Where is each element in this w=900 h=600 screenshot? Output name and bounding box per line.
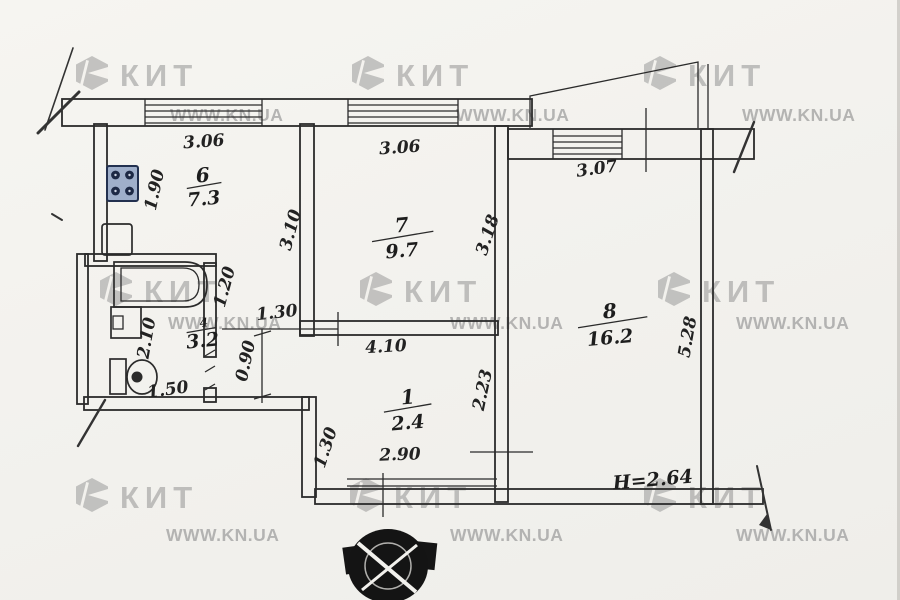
- room-label-room7: 7 9.7: [370, 210, 436, 264]
- room-label-room8: 8 16.2: [576, 296, 650, 352]
- wall-bathroom-left: [77, 254, 88, 404]
- kit-logo-icon: [352, 56, 384, 90]
- wall-bottom-left: [84, 397, 309, 410]
- dim-kitchen-window: 3.06: [183, 131, 226, 154]
- watermark-site: WWW.KN.UA: [736, 525, 849, 545]
- watermark-site: WWW.KN.UA: [170, 105, 283, 125]
- watermark-site: WWW.KN.UA: [742, 105, 855, 125]
- room-area: 16.2: [586, 325, 634, 351]
- wall-top-right: [508, 129, 754, 159]
- room-number: 4: [199, 315, 209, 330]
- room-number: 7: [394, 212, 410, 237]
- watermark-site: WWW.KN.UA: [450, 313, 563, 333]
- watermark-brand: КИТ: [404, 274, 482, 309]
- kit-logo-icon: [658, 272, 690, 306]
- watermark-site: WWW.KN.UA: [736, 313, 849, 333]
- wall-break-mark: [78, 400, 105, 446]
- room-label-kitchen: 6 7.3: [184, 162, 223, 212]
- watermark-site: WWW.KN.UA: [456, 105, 569, 125]
- room-number: 1: [400, 384, 416, 409]
- wall-break-mark: [45, 48, 73, 130]
- dim-kitchen-depth: 3.10: [276, 207, 306, 252]
- dim-hall-bottom-width: 2.90: [378, 444, 421, 465]
- bathroom-door-hatch: [205, 350, 215, 390]
- floor-plan-drawing: КИТ КИТ КИТ КИТ КИТ КИТ КИТ КИТ КИТ WWW.…: [0, 0, 900, 600]
- wall-kitchen-left: [94, 124, 107, 261]
- scan-speck: [52, 214, 62, 220]
- watermark-brand: КИТ: [120, 480, 198, 515]
- kit-logo-icon: [360, 272, 392, 306]
- watermark-brand: КИТ: [396, 58, 474, 93]
- watermark-brand: КИТ: [120, 58, 198, 93]
- dim-room8-depth: 5.28: [675, 315, 702, 359]
- dim-room8-window: 3.07: [575, 156, 619, 182]
- room-number: 8: [601, 298, 618, 323]
- dim-hall-top-width: 4.10: [365, 336, 408, 358]
- wall-kitchen-room7: [300, 124, 314, 336]
- dim-bathroom-top-width: 1.20: [210, 264, 240, 309]
- watermark-site: WWW.KN.UA: [166, 525, 279, 545]
- dim-corridor-depth: 0.90: [232, 339, 260, 384]
- room-number: 6: [195, 162, 211, 187]
- kit-logo-icon: [76, 478, 108, 512]
- washbasin-icon: [111, 307, 141, 338]
- dim-bathroom-width: 1.50: [146, 377, 190, 403]
- wall-entry-step: [302, 397, 316, 497]
- dim-room7-window: 3.06: [379, 137, 422, 160]
- room-area: 2.4: [390, 411, 426, 436]
- dim-bathroom-depth: 2.10: [133, 316, 160, 361]
- watermark-brand: КИТ: [688, 58, 766, 93]
- room-area: 7.3: [186, 187, 221, 212]
- window-room7: [348, 99, 458, 126]
- watermark-brand: КИТ: [394, 480, 472, 515]
- stamp-mark: [342, 529, 437, 600]
- kit-logo-icon: [76, 56, 108, 90]
- room-area: 9.7: [385, 239, 420, 264]
- dim-kitchen-width: 1.90: [141, 168, 169, 213]
- watermark-brand: КИТ: [688, 480, 766, 515]
- scanned-floor-plan: КИТ КИТ КИТ КИТ КИТ КИТ КИТ КИТ КИТ WWW.…: [0, 0, 900, 600]
- stove-icon: [107, 166, 138, 201]
- room-area: 3.2: [185, 328, 220, 353]
- kit-logo-icon: [644, 56, 676, 90]
- wall-right: [701, 129, 713, 504]
- dim-entry-step: 1.30: [310, 425, 342, 471]
- room-label-hall: 1 2.4: [382, 383, 434, 436]
- dim-hall-depth: 2.23: [469, 368, 497, 414]
- dim-corridor-width: 1.30: [255, 301, 298, 325]
- dim-room7-depth: 3.18: [472, 212, 504, 258]
- window-room8: [553, 129, 622, 159]
- kit-logo-icon: [350, 478, 382, 512]
- ceiling-height-note: H=2.64: [611, 466, 694, 495]
- watermark-site: WWW.KN.UA: [450, 525, 563, 545]
